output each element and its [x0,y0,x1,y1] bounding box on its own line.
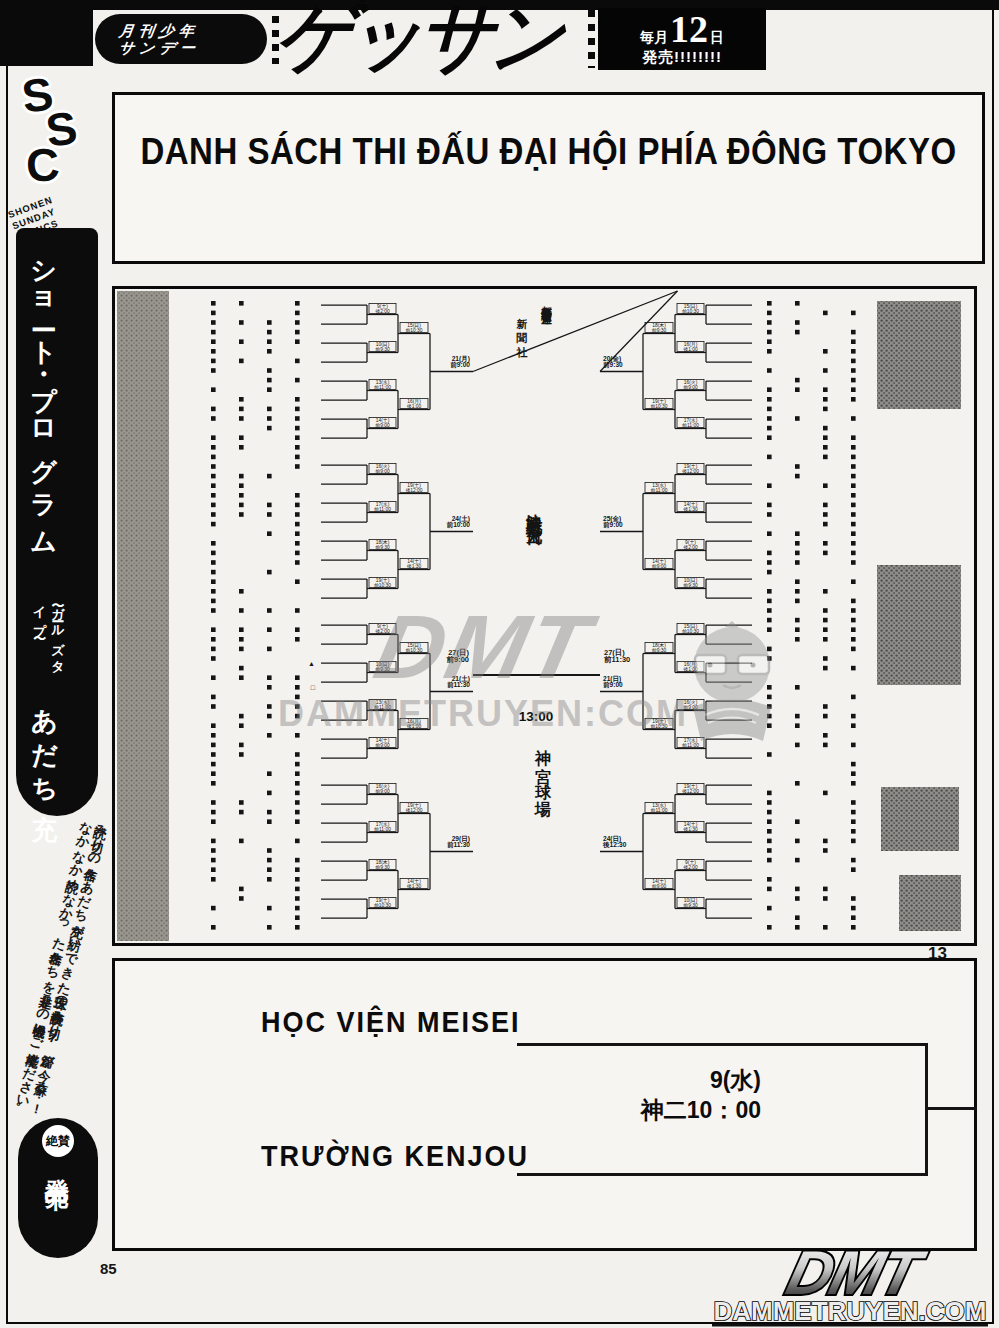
svg-text:19(土)後12:00: 19(土)後12:00 [682,783,699,794]
zessan-badge: 絶賛 [42,1125,74,1157]
svg-text:17(水)前11:00: 17(水)前11:00 [682,417,699,428]
sidebar-blurb: 読み切りの名作、あだち充が紡いできた珠玉の名作読み切り7篇が今、蘇る!! なかな… [0,796,111,1122]
series-subtitle: 〜ガールズタイプ〜 [30,596,66,680]
release-date-box: 毎月 12 日 発売!!!!!!!! [598,8,766,70]
release-prefix: 毎月 [640,29,668,47]
svg-text:19(土)前10:30: 19(土)前10:30 [650,718,667,729]
top-left-black-corner [0,0,93,66]
team-bottom-line [517,1173,927,1176]
team-top-name: HỌC VIỆN MEISEI [261,1006,521,1039]
svg-text:19(土)前10:30: 19(土)前10:30 [650,398,667,409]
right-halftone-block-1 [877,301,961,409]
svg-text:16(月)後1:00: 16(月)後1:00 [683,342,698,352]
svg-text:19(土)後12:00: 19(土)後12:00 [405,802,422,813]
svg-text:14(土)前9:00: 14(土)前9:00 [652,558,667,569]
author-name: あだち充 [28,690,63,799]
svg-text:24(土)前10:00: 24(土)前10:00 [447,515,471,529]
svg-text:9(土)後2:00: 9(土)後2:00 [683,539,698,550]
svg-text:18(木)前9:30: 18(木)前9:30 [375,859,390,870]
right-halftone-block-4 [899,875,961,931]
svg-text:17(水)前11:00: 17(水)前11:00 [374,501,391,512]
svg-text:14(土)前9:00: 14(土)前9:00 [652,878,667,889]
svg-text:13(水)前11:00: 13(水)前11:00 [651,802,668,813]
svg-text:13(水)前11:00: 13(水)前11:00 [374,379,391,390]
svg-text:10(日)前9:30: 10(日)前9:30 [683,898,698,908]
page-number-85: 85 [100,1260,117,1277]
svg-text:18(木)前9:30: 18(木)前9:30 [652,642,667,653]
svg-text:10(日)前9:30: 10(日)前9:30 [375,662,390,672]
svg-text:□: □ [311,684,316,691]
left-halftone-strip [117,291,169,941]
on-sale-capsule: 絶賛 発売中 [18,1118,98,1258]
svg-text:19(土)前10:30: 19(土)前10:30 [374,577,391,588]
svg-text:10(日)前9:30: 10(日)前9:30 [375,342,390,352]
dmt-site-text: DAMMETRUYEN.COM [714,1296,987,1326]
svg-text:14(土)前9:00: 14(土)前9:00 [375,417,390,428]
svg-text:14(土)後1:30: 14(土)後1:30 [407,558,422,569]
right-halftone-block-3 [881,787,959,851]
svg-text:18(木)前9:30: 18(木)前9:30 [652,322,667,333]
watermark-mascot-icon [675,619,790,744]
svg-text:25(金)前9:00: 25(金)前9:00 [603,515,623,529]
svg-text:16(火)前9:00: 16(火)前9:00 [375,783,390,794]
tournament-bracket-box: 9(土)後2:0010(日)前9:3013(水)前11:0014(土)前9:00… [112,286,977,946]
svg-text:13(水)前11:00: 13(水)前11:00 [651,482,668,493]
release-date-line: 毎月 12 日 [640,12,724,47]
svg-text:29(日)前11:30: 29(日)前11:30 [447,835,470,849]
final-match-text: 決勝戦七月二十九日（火） [523,501,544,519]
svg-text:20(金)前9:30: 20(金)前9:30 [603,355,623,369]
svg-text:19(土)後12:00: 19(土)後12:00 [682,463,699,474]
svg-text:14(土)後1:30: 14(土)後1:30 [683,501,698,512]
next-match-panel: HỌC VIỆN MEISEI TRƯỜNG KENJOU 9(水) 神二10：… [112,958,977,1251]
svg-text:21(月)前9:00: 21(月)前9:00 [450,355,470,369]
svg-text:16(月)後1:00: 16(月)後1:00 [407,399,422,409]
title-box: DANH SÁCH THI ĐẤU ĐẠI HỘI PHÍA ĐÔNG TOKY… [112,92,985,264]
svg-text:27(日)前11:30: 27(日)前11:30 [604,648,630,664]
magazine-name-pill: 月刊少年 サンデー [95,14,267,64]
on-sale-text: 発売中 [42,1159,75,1168]
bracket-diagram: 9(土)後2:0010(日)前9:3013(水)前11:0014(土)前9:00… [115,289,974,943]
svg-text:9(土)後2:00: 9(土)後2:00 [375,303,390,314]
svg-text:18(木)前9:30: 18(木)前9:30 [375,539,390,550]
page-title: DANH SÁCH THI ĐẤU ĐẠI HỘI PHÍA ĐÔNG TOKY… [115,131,982,174]
right-halftone-block-2 [877,565,961,685]
final-time: 13:00 [471,709,601,724]
match-time-venue: 神二10：00 [565,1095,761,1126]
svg-text:9(土)後2:00: 9(土)後2:00 [683,859,698,870]
svg-text:9(土)後2:00: 9(土)後2:00 [375,623,390,634]
svg-text:21(土)前11:30: 21(土)前11:30 [447,675,470,689]
svg-text:27(日)前9:00: 27(日)前9:00 [446,648,469,664]
svg-text:14(土)後1:30: 14(土)後1:30 [683,821,698,832]
team-bottom-name: TRƯỜNG KENJOU [261,1140,529,1173]
gessan-logo: ゲッサン [268,0,581,91]
magazine-name-line1: 月刊少年 [118,22,268,39]
svg-text:16(火)前9:00: 16(火)前9:00 [375,463,390,474]
match-connector-stub [925,1107,977,1110]
svg-text:14(土)前9:00: 14(土)前9:00 [375,737,390,748]
team-top-line [517,1043,927,1046]
svg-text:21(日)前9:00: 21(日)前9:00 [603,675,623,689]
svg-text:▲: ▲ [308,660,315,667]
match-date: 9(水) [565,1065,761,1096]
svg-text:24(日)後12:30: 24(日)後12:30 [602,835,627,849]
release-day: 12 [670,12,708,46]
manga-page: 月刊少年 サンデー ゲッサン 毎月 12 日 発売!!!!!!!! S S C … [0,0,999,1328]
svg-text:16(月)後1:00: 16(月)後1:00 [407,719,422,729]
ssc-letter-c: C [24,141,60,189]
svg-text:10(日)前9:30: 10(日)前9:30 [683,578,698,588]
svg-text:17(水)前11:00: 17(水)前11:00 [374,821,391,832]
dmt-footer-logo: DMT DAMMETRUYEN.COM [700,1236,992,1328]
svg-text:19(土)後12:00: 19(土)後12:00 [405,482,422,493]
svg-text:16(火)前9:00: 16(火)前9:00 [683,379,698,390]
final-date-text: 決勝戦七月二十九日 [526,501,543,519]
dotted-separator-right [588,10,595,68]
magazine-name-line2: サンデー [118,39,268,56]
dmt-site-underline [712,1324,988,1327]
release-day-suffix: 日 [710,29,724,47]
release-suffix: 発売!!!!!!!! [642,48,722,67]
svg-text:19(土)前10:30: 19(土)前10:30 [374,897,391,908]
organizer-column-a: 新聞社 [514,309,529,351]
venue-text: 神宮球場 [532,737,553,805]
svg-text:14(土)後1:30: 14(土)後1:30 [407,878,422,889]
organizer-column-b: 都高等学校野球連盟 [540,297,554,306]
svg-text:15(日)前10:30: 15(日)前10:30 [405,643,422,653]
svg-text:15(日)前10:30: 15(日)前10:30 [405,323,422,333]
svg-text:13(水)前11:00: 13(水)前11:00 [374,699,391,710]
svg-text:15(日)前10:30: 15(日)前10:30 [682,304,699,314]
series-title: ショート・プログラム [27,242,62,549]
